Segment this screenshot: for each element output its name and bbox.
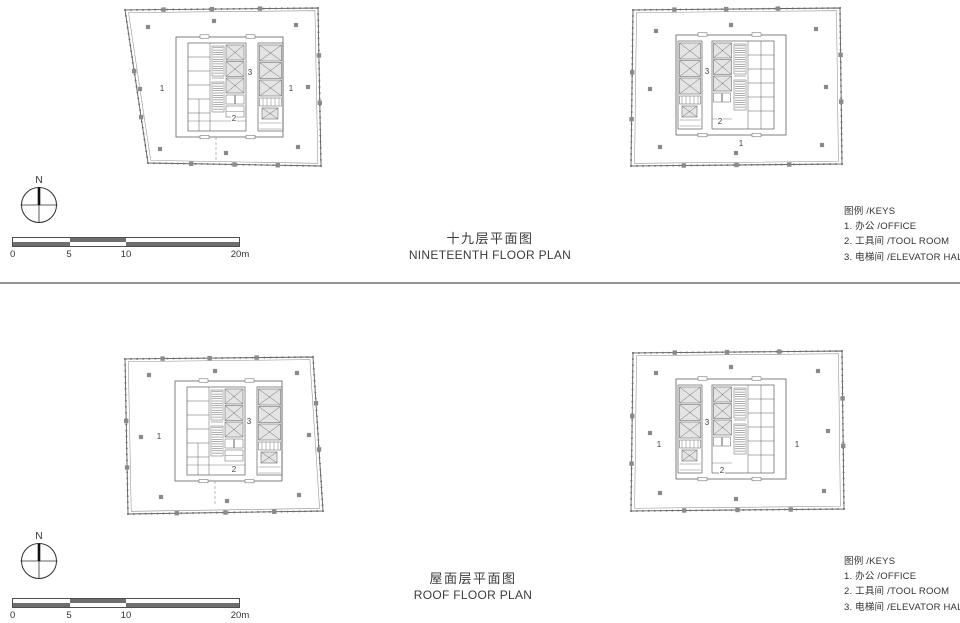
room-label-elevator-hall: 3 bbox=[705, 67, 710, 76]
legend-nineteenth: 图例 /KEYS 1. 办公 /OFFICE 2. 工具间 /TOOL ROOM… bbox=[844, 204, 960, 265]
room-label-elevator-hall: 3 bbox=[705, 418, 710, 427]
scale-label-10: 10 bbox=[121, 610, 132, 621]
scale-label-0: 0 bbox=[10, 610, 15, 621]
legend-item-elevator-hall: 3. 电梯间 /ELEVATOR HALL bbox=[844, 250, 960, 265]
north-label: N bbox=[35, 175, 42, 186]
legend-item-tool-room: 2. 工具间 /TOOL ROOM bbox=[844, 584, 960, 599]
room-label-office: 1 bbox=[289, 84, 294, 93]
plan-title-en: ROOF FLOOR PLAN bbox=[343, 588, 603, 602]
scale-label-0: 0 bbox=[10, 249, 15, 260]
floor-plan-nineteenth-right: 321 bbox=[626, 5, 846, 170]
room-label-office: 1 bbox=[160, 84, 165, 93]
plan-title-en: NINETEENTH FLOOR PLAN bbox=[360, 248, 620, 262]
plan-title-nineteenth: 十九层平面图 NINETEENTH FLOOR PLAN bbox=[360, 228, 620, 262]
room-label-tool-room: 2 bbox=[232, 465, 237, 474]
north-arrow-icon: N bbox=[16, 528, 62, 587]
floor-plan-roof-left: 132 bbox=[113, 347, 329, 517]
drawing-sheet: 1312 321 N 0 5 10 20m 十九层平面图 NINETEENTH … bbox=[0, 0, 960, 623]
legend-roof: 图例 /KEYS 1. 办公 /OFFICE 2. 工具间 /TOOL ROOM… bbox=[844, 554, 960, 615]
room-label-office: 1 bbox=[157, 432, 162, 441]
legend-header: 图例 /KEYS bbox=[844, 204, 960, 219]
legend-item-office: 1. 办公 /OFFICE bbox=[844, 569, 960, 584]
north-label: N bbox=[35, 531, 42, 542]
legend-header: 图例 /KEYS bbox=[844, 554, 960, 569]
north-arrow-icon: N bbox=[16, 172, 62, 231]
floor-plan-roof-right: 1321 bbox=[626, 349, 846, 514]
room-label-office: 1 bbox=[795, 440, 800, 449]
room-label-tool-room: 2 bbox=[718, 117, 723, 126]
scale-label-20m: 20m bbox=[231, 610, 249, 621]
legend-item-office: 1. 办公 /OFFICE bbox=[844, 219, 960, 234]
scale-bar: 0 5 10 20m bbox=[12, 237, 240, 261]
section-divider bbox=[0, 282, 960, 284]
scale-label-20m: 20m bbox=[231, 249, 249, 260]
floor-plan-nineteenth-left: 1312 bbox=[114, 3, 330, 171]
plan-title-roof: 屋面层平面图 ROOF FLOOR PLAN bbox=[343, 568, 603, 602]
scale-label-10: 10 bbox=[121, 249, 132, 260]
plan-title-zh: 十九层平面图 bbox=[360, 228, 620, 247]
legend-item-elevator-hall: 3. 电梯间 /ELEVATOR HALL bbox=[844, 600, 960, 615]
room-label-tool-room: 2 bbox=[232, 114, 237, 123]
scale-bar: 0 5 10 20m bbox=[12, 598, 240, 622]
plan-title-zh: 屋面层平面图 bbox=[343, 568, 603, 587]
scale-bar-graphic bbox=[12, 237, 240, 247]
room-label-office: 1 bbox=[739, 139, 744, 148]
room-label-office: 1 bbox=[657, 440, 662, 449]
scale-label-5: 5 bbox=[66, 610, 71, 621]
scale-bar-graphic bbox=[12, 598, 240, 608]
room-label-elevator-hall: 3 bbox=[248, 68, 253, 77]
room-label-tool-room: 2 bbox=[720, 466, 725, 475]
scale-label-5: 5 bbox=[66, 249, 71, 260]
room-label-elevator-hall: 3 bbox=[247, 417, 252, 426]
legend-item-tool-room: 2. 工具间 /TOOL ROOM bbox=[844, 234, 960, 249]
